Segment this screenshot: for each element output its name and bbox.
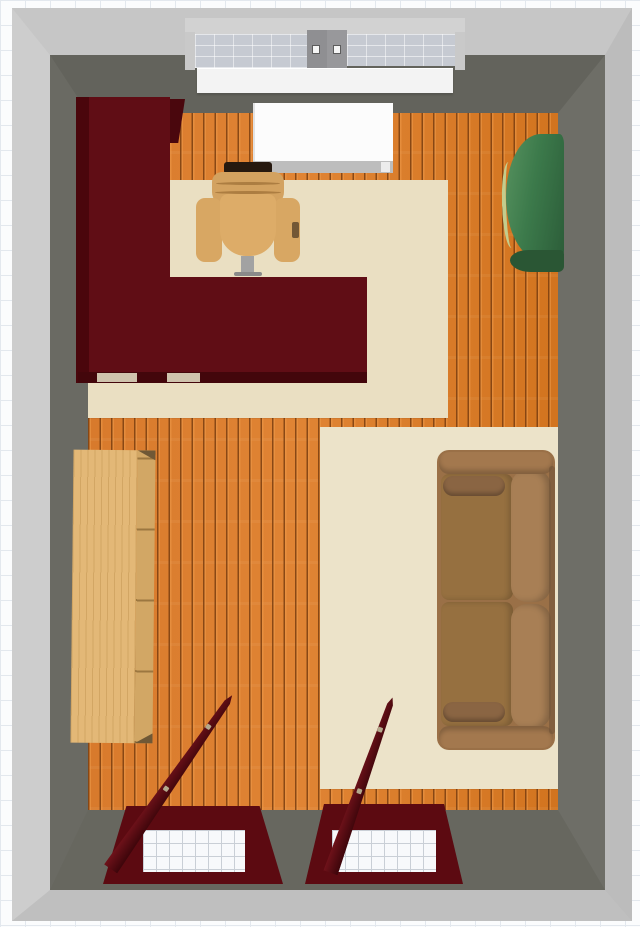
window-handle-right-icon xyxy=(333,45,341,54)
chair-base-foot xyxy=(234,272,262,276)
sash-hardware-icon xyxy=(356,788,362,794)
desk-left-edge xyxy=(76,97,89,383)
sofa-bolster-pillow-2 xyxy=(443,702,505,722)
green-curved-console[interactable] xyxy=(500,134,564,274)
desk-vertical-section xyxy=(76,97,170,383)
window-sill xyxy=(197,68,453,93)
sofa-back-cushion-2 xyxy=(511,604,551,728)
top-casement-window[interactable] xyxy=(185,18,465,92)
window-pane-right xyxy=(347,34,455,66)
chair-armrest-left xyxy=(196,198,222,262)
sofa-bolster-pillow-1 xyxy=(443,476,505,496)
bookshelf-top-face xyxy=(70,450,137,744)
office-chair[interactable] xyxy=(196,160,300,278)
sofa-armrest-top xyxy=(439,452,553,474)
bookshelf[interactable] xyxy=(70,450,155,744)
sofa-armrest-bottom xyxy=(439,726,553,748)
window-jamb-right xyxy=(455,32,465,70)
sash-hardware-icon xyxy=(163,785,170,792)
chair-seat xyxy=(220,194,276,256)
console-front-face xyxy=(510,250,564,272)
desk-foot-notch-1 xyxy=(97,373,137,382)
bookshelf-shelf-edge xyxy=(134,450,155,743)
desk-horizontal-section xyxy=(170,277,367,383)
bottom-window-left-glass xyxy=(143,830,245,872)
white-table-leg-right xyxy=(381,162,390,172)
sofa-back-cushion-1 xyxy=(511,470,551,602)
chair-back-seam xyxy=(216,182,280,185)
chair-arm-shadow xyxy=(292,222,299,238)
viewport-3d[interactable]: { "app": { "view": "3d-room-plan-aerial-… xyxy=(0,0,640,927)
window-handle-left-icon xyxy=(312,45,320,54)
desk-side-panel xyxy=(170,99,185,143)
window-pane-left xyxy=(195,34,307,68)
desk-foot-notch-2 xyxy=(167,373,200,382)
two-seat-sofa[interactable] xyxy=(437,450,557,750)
sofa-wall-shadow xyxy=(549,466,555,734)
window-jamb-left xyxy=(185,32,195,70)
